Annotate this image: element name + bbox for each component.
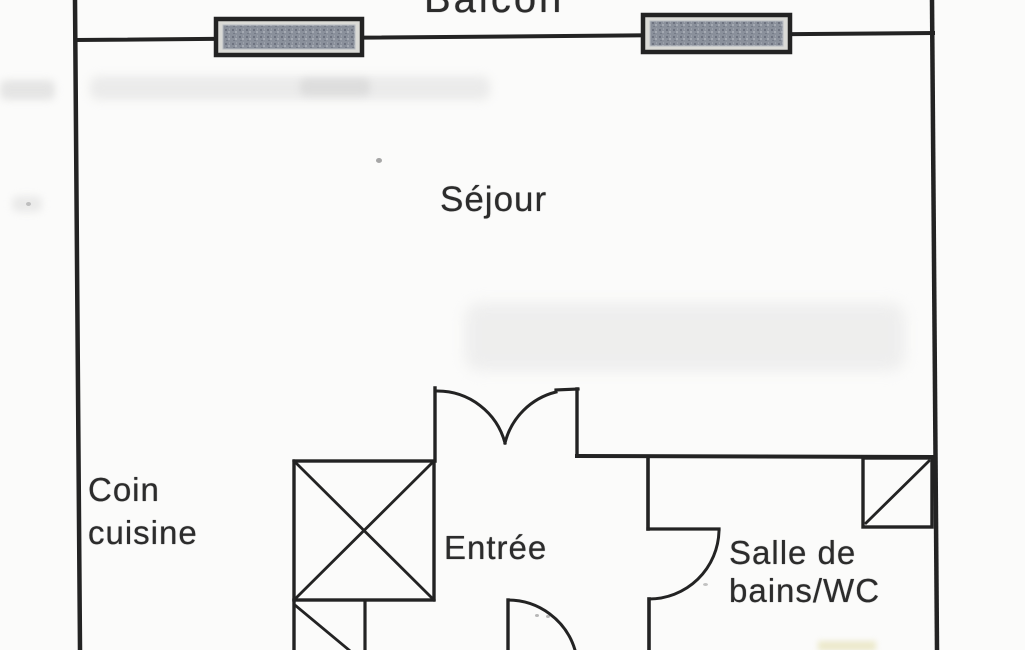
label-entree: Entrée — [444, 530, 547, 567]
inner-door-swing — [508, 600, 575, 650]
label-balcon: Balcon — [424, 0, 564, 22]
label-bains-line1: Salle de — [729, 534, 856, 571]
label-coin-cuisine: Coincuisine — [88, 468, 198, 554]
closet-crossbox — [294, 461, 434, 600]
duct-diagonal — [866, 461, 929, 523]
door-swing-arc — [508, 600, 575, 650]
left-wall — [75, 0, 80, 650]
right-wall — [932, 0, 937, 650]
duct-crossbox — [863, 458, 932, 527]
label-salle-de-bains: Salle debains/WC — [729, 534, 880, 610]
lower-crossbox — [294, 600, 365, 650]
door-lintel-stub — [556, 389, 578, 390]
label-bains-line2: bains/WC — [729, 572, 880, 609]
crossbox-diagonal — [296, 606, 349, 650]
window-symbol — [216, 19, 362, 55]
window-symbol — [643, 15, 790, 52]
label-sejour: Séjour — [440, 180, 547, 219]
door-swing-arc — [649, 531, 719, 599]
entrance-double-door — [435, 388, 578, 461]
floor-plan-page: Balcon Séjour Coincuisine Entrée Salle d… — [0, 0, 1025, 650]
facade-wall — [76, 33, 933, 40]
door-swing-arc — [505, 392, 556, 443]
label-coin-line2: cuisine — [88, 514, 198, 551]
bathroom-door-swing — [648, 529, 719, 599]
door-swing-arc — [437, 391, 505, 443]
label-coin-line1: Coin — [88, 471, 160, 508]
